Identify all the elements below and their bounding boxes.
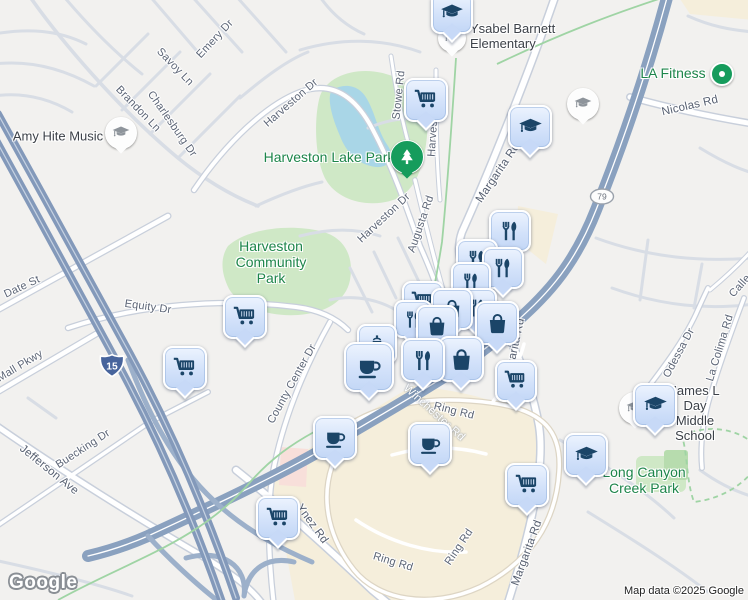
map-canvas[interactable]: Savoy LnEmery DrBrandon LnCharlesburg Dr… bbox=[0, 0, 748, 600]
poi-marker-grad-school-3[interactable] bbox=[633, 383, 677, 427]
bag-icon bbox=[447, 345, 476, 374]
poi-marker-grad-school-pin-small-1[interactable] bbox=[567, 88, 599, 120]
poi-marker-cup-cafe-1[interactable] bbox=[344, 342, 394, 392]
map-base-svg bbox=[0, 0, 748, 600]
poi-marker-fork-restaurant-7[interactable] bbox=[401, 338, 445, 382]
poi-marker-cart-grocery-7[interactable] bbox=[256, 496, 300, 540]
google-logo: Google bbox=[9, 572, 77, 594]
cart-icon bbox=[514, 472, 541, 499]
grad-icon bbox=[642, 392, 669, 419]
poi-marker-grad-school-pin-amy-hite[interactable] bbox=[105, 117, 137, 149]
map-attribution: Map data ©2025 Google bbox=[624, 585, 744, 597]
fork-icon bbox=[497, 218, 523, 244]
poi-marker-cart-grocery-1[interactable] bbox=[404, 78, 448, 122]
fork-icon bbox=[490, 255, 516, 281]
grad-icon bbox=[573, 442, 600, 469]
poi-marker-cart-grocery-5[interactable] bbox=[495, 360, 537, 402]
bag-icon bbox=[484, 310, 511, 337]
cart-icon bbox=[172, 355, 199, 382]
poi-marker-dot-la-fitness-dot[interactable] bbox=[710, 62, 734, 86]
grad-icon bbox=[111, 123, 131, 143]
cart-icon bbox=[232, 304, 259, 331]
cup-icon bbox=[322, 425, 349, 452]
poi-marker-bag-shopping-2[interactable] bbox=[475, 301, 519, 345]
fork-icon bbox=[410, 347, 437, 374]
grad-icon bbox=[573, 94, 593, 114]
poi-marker-tree-park-pin-tree[interactable] bbox=[390, 140, 424, 174]
poi-marker-grad-school-4[interactable] bbox=[564, 433, 608, 477]
cup-icon bbox=[354, 352, 385, 383]
poi-marker-cup-cafe-2[interactable] bbox=[313, 416, 357, 460]
tree-icon bbox=[396, 146, 418, 168]
poi-marker-cart-grocery-3[interactable] bbox=[223, 295, 267, 339]
cart-icon bbox=[265, 505, 292, 532]
poi-marker-cup-cafe-3[interactable] bbox=[408, 422, 452, 466]
poi-marker-cart-grocery-6[interactable] bbox=[505, 463, 549, 507]
cup-icon bbox=[417, 431, 444, 458]
grad-icon bbox=[439, 0, 465, 26]
cart-icon bbox=[413, 87, 440, 114]
grad-icon bbox=[517, 114, 544, 141]
poi-marker-grad-school-1[interactable] bbox=[431, 0, 473, 34]
poi-marker-cart-grocery-4[interactable] bbox=[163, 346, 207, 390]
cart-icon bbox=[503, 368, 529, 394]
poi-marker-grad-school-2[interactable] bbox=[508, 105, 552, 149]
